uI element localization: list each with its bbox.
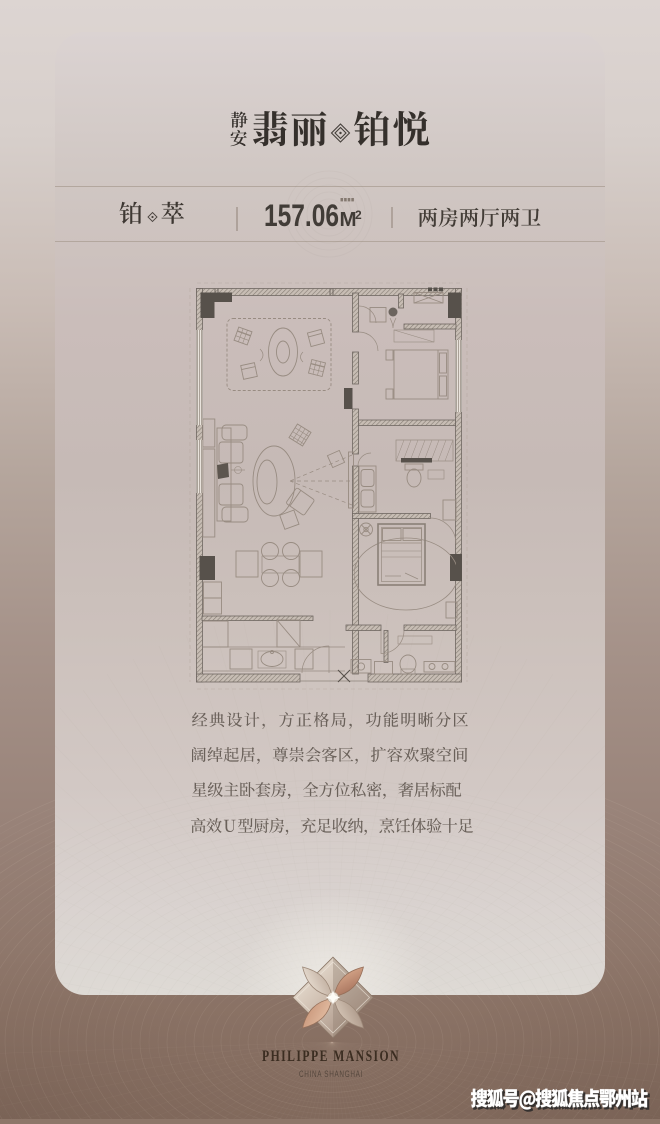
svg-text:157.06: 157.06: [264, 197, 339, 233]
svg-text:2: 2: [355, 208, 362, 222]
svg-text:PHILIPPE MANSION: PHILIPPE MANSION: [262, 1048, 400, 1065]
svg-text:CHINA SHANGHAI: CHINA SHANGHAI: [299, 1069, 363, 1080]
